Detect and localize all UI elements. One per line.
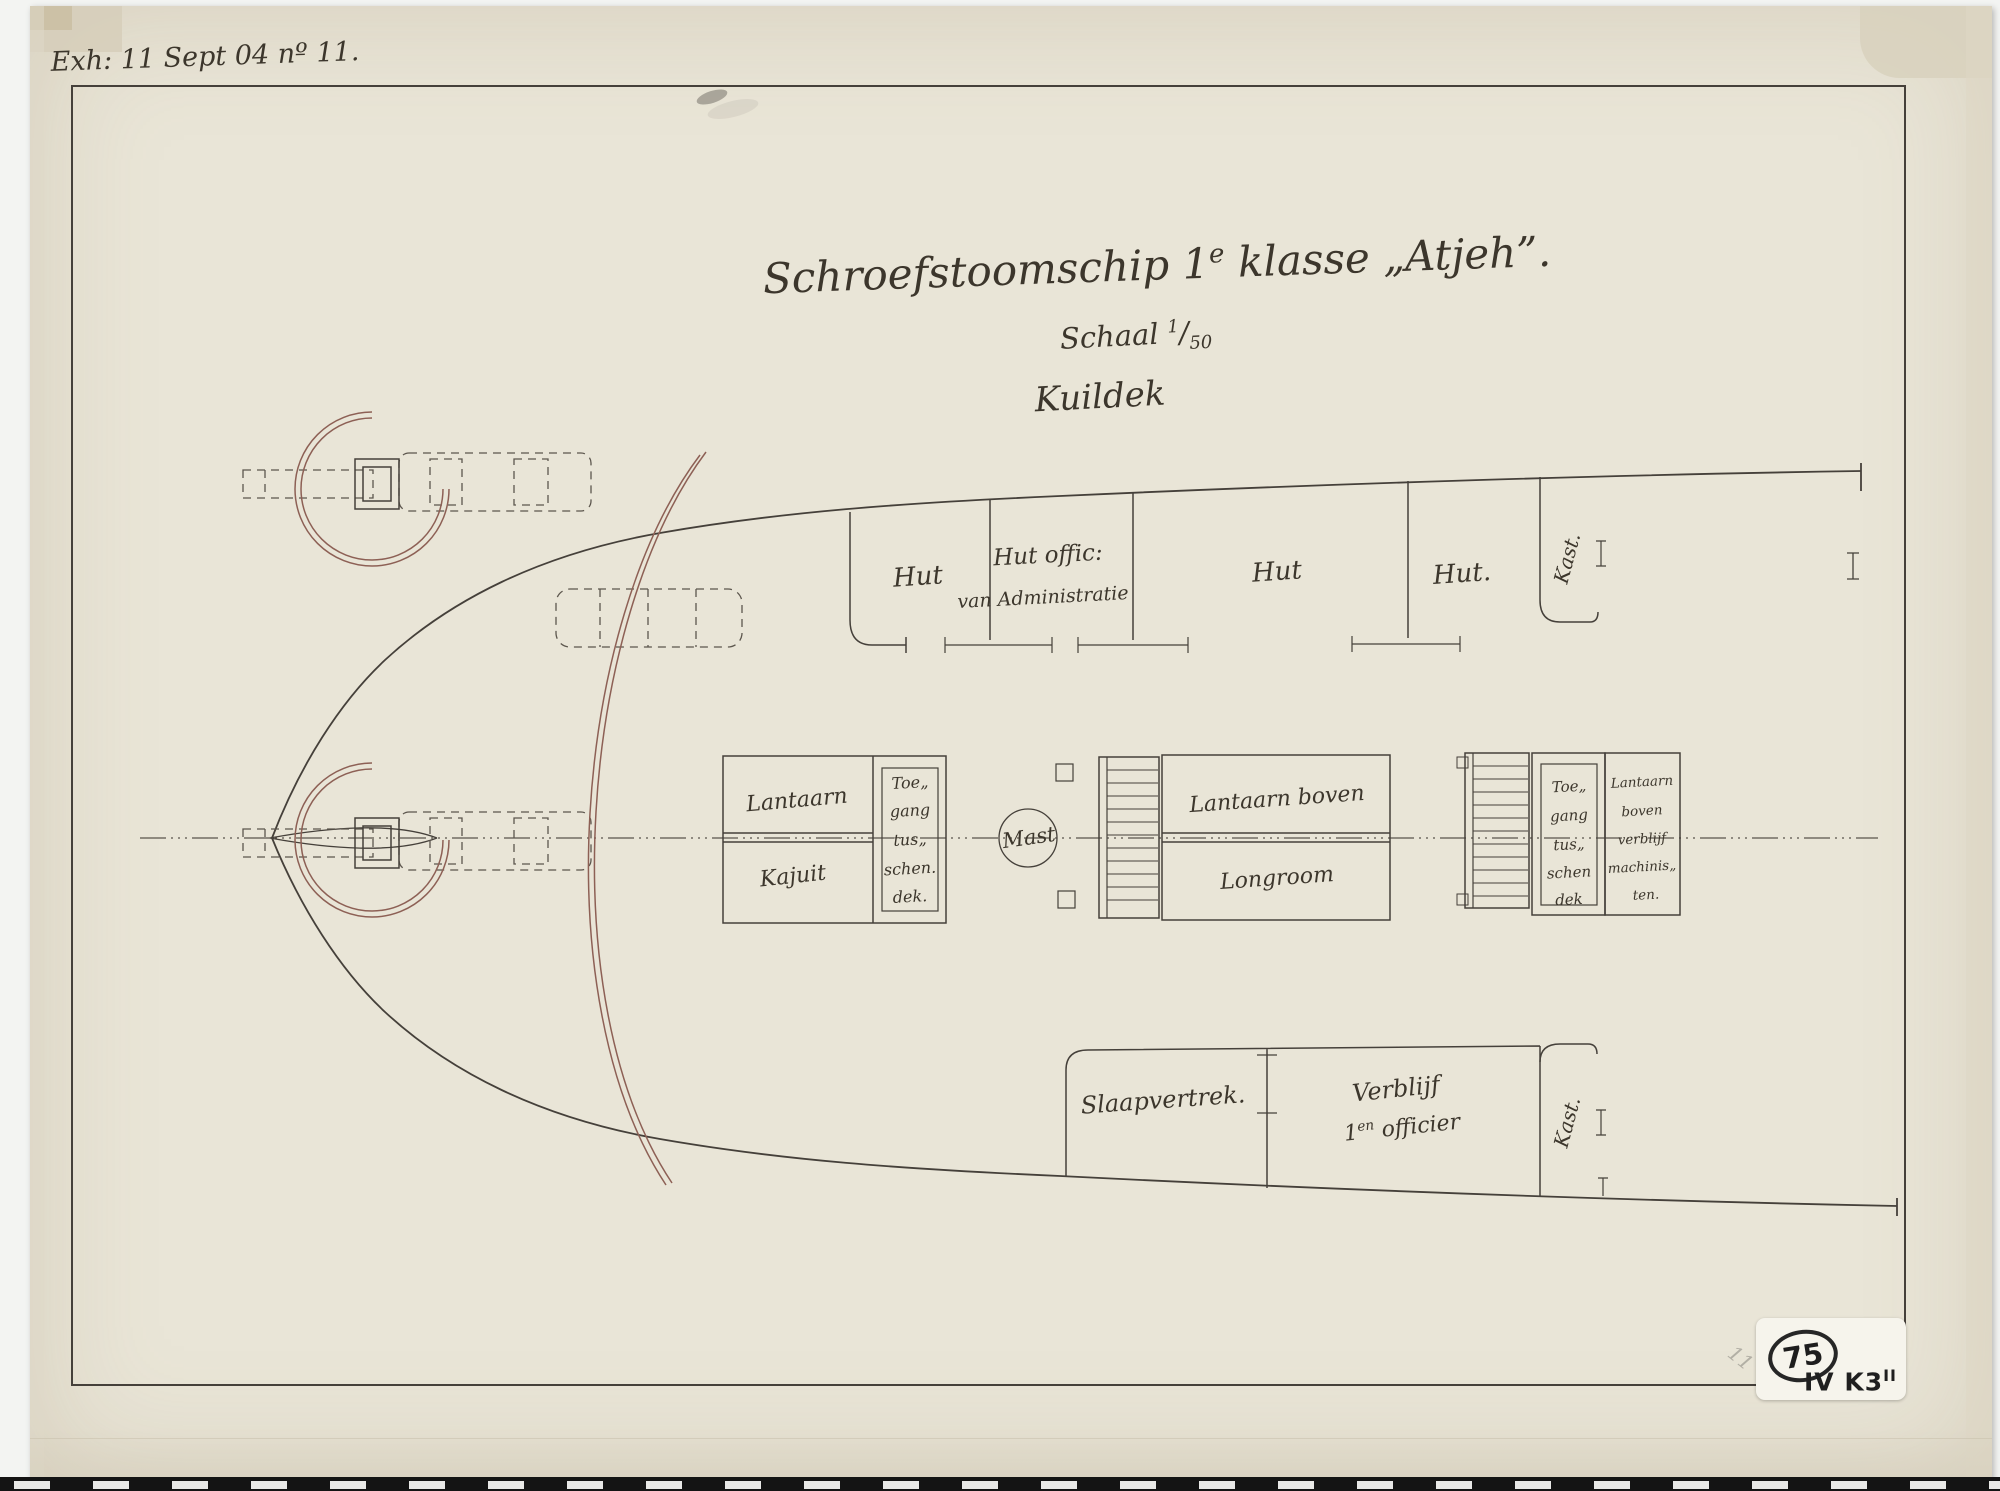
plan-linework — [0, 0, 2000, 1491]
bow-gun-trunnion-inner — [363, 826, 391, 860]
deck-name: Kuildek — [1034, 377, 1166, 418]
training-arc-outer — [594, 452, 706, 1183]
access-fore-line-2: gang — [889, 802, 930, 820]
film-edge-strip — [0, 1477, 2000, 1491]
lantern-cabin-divider — [723, 756, 873, 923]
access-aft-line-3: tus„ — [1553, 837, 1585, 854]
scale-denominator: 50 — [1189, 332, 1213, 354]
access-fore-line-5: dek. — [892, 888, 927, 906]
gun-trunnions — [355, 459, 399, 868]
door-sills — [945, 636, 1460, 653]
access-fore-line-4: schen. — [883, 860, 936, 879]
upper-pivot-arc-outer — [295, 412, 449, 566]
access-aft-line-2: gang — [1550, 808, 1589, 825]
lower-dimension-marks — [1596, 1110, 1608, 1196]
access-fore-line-1: Toe„ — [891, 774, 929, 792]
hull-end-ticks — [1861, 463, 1897, 1216]
cabin-label-2-line1: Hut offic: — [993, 542, 1104, 571]
rail-post-bottom — [1457, 894, 1468, 905]
scale-word: Schaal — [1059, 316, 1168, 356]
scanned-ship-plan: Exh: 11 Sept 04 nº 11. Schroefstoomschip… — [0, 0, 2000, 1491]
upper-gun-trunnion-inner — [363, 467, 391, 501]
kast-dimension-mark — [1596, 541, 1606, 566]
smudge-mark — [695, 86, 760, 123]
access-aft-line-4: schen — [1546, 864, 1591, 881]
companionway-aft-steps — [1473, 766, 1528, 896]
upper-pivot-arc-inner — [301, 418, 443, 560]
gun-training-arcs — [295, 412, 706, 1185]
upper-cabin-walls — [850, 477, 1606, 653]
upper-gun-carriage — [399, 453, 591, 511]
deck-fitting-square-top — [1056, 764, 1073, 781]
companionway-fore-steps — [1107, 770, 1158, 900]
upper-gun-slide-dividers — [600, 589, 696, 647]
upper-gun-carriage-detail-1 — [430, 459, 462, 505]
training-arc-inner — [588, 455, 700, 1185]
dimension-mark-upper-right — [1847, 553, 1859, 579]
access-fore-line-3: tus„ — [893, 831, 927, 849]
upper-gun-carriage-detail-2 — [514, 459, 548, 505]
cabin-label-1: Hut — [892, 562, 944, 591]
inventory-code-superscript: II — [1883, 1366, 1897, 1385]
cabin-label-3: Hut — [1251, 557, 1303, 586]
inventory-code: IV K3II — [1804, 1366, 1897, 1396]
rail-post-top — [1457, 757, 1468, 768]
engineers-lantern-line-2: boven — [1621, 804, 1663, 820]
deck-fitting-square-bottom — [1058, 891, 1075, 908]
upper-gun-barrel — [243, 470, 373, 498]
lower-kast-corner — [1540, 1044, 1597, 1062]
inventory-code-main: IV K3 — [1804, 1367, 1883, 1396]
scale-numerator: 1 — [1167, 316, 1180, 338]
bow-gun-carriage-detail-1 — [430, 818, 462, 864]
bow-gun-carriage-detail-2 — [514, 818, 548, 864]
archive-sticker: 75 IV K3II — [1756, 1318, 1906, 1400]
scale-label: Schaal 1/50 — [1059, 316, 1213, 359]
lower-cabin-walls — [1066, 1044, 1608, 1196]
access-aft-line-5: dek — [1555, 892, 1583, 908]
cabin-label-4: Hut. — [1432, 559, 1492, 589]
bow-gun-barrel — [243, 829, 373, 857]
bow-pivot-arc-inner — [301, 769, 443, 911]
engineers-lantern-line-4: machinis„ — [1608, 859, 1677, 876]
plan-title-superscript: e — [1208, 239, 1224, 270]
engineers-lantern-line-1: Lantaarn — [1610, 775, 1673, 792]
lower-block-outline — [1066, 1046, 1540, 1196]
bow-pivot-arc-outer — [295, 763, 449, 917]
access-aft-line-1: Toe„ — [1551, 779, 1586, 796]
upper-gun-slide — [556, 589, 742, 647]
officer-number-suffix: en — [1357, 1117, 1375, 1135]
engineers-lantern-line-5: ten. — [1632, 889, 1659, 904]
engineers-lantern-line-3: verblijf — [1617, 832, 1666, 848]
